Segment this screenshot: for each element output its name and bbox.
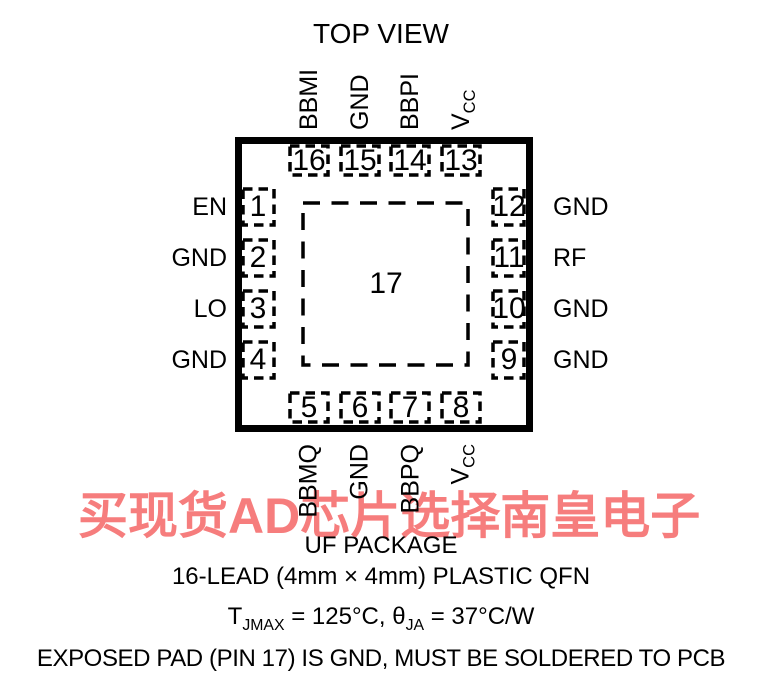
vcc-subscript: CC — [461, 444, 479, 468]
pin-4-label: GND — [171, 347, 227, 373]
diagram-title: TOP VIEW — [0, 20, 762, 48]
pin-10-label: GND — [553, 296, 609, 322]
pin-1-number: 1 — [250, 192, 267, 222]
package-name-caption: UF PACKAGE — [0, 533, 762, 559]
lead-count-caption: 16-LEAD (4mm × 4mm) PLASTIC QFN — [0, 564, 762, 590]
exposed-pad-note: EXPOSED PAD (PIN 17) IS GND, MUST BE SOL… — [0, 646, 762, 672]
pin-12-label: GND — [553, 194, 609, 220]
thermal-mid-text: = 125°C, θ — [285, 603, 406, 630]
pin-5-label: BBMQ — [296, 444, 322, 518]
pin-11-label: RF — [553, 245, 586, 271]
pin-6-label: GND — [347, 444, 373, 500]
pin-12-number: 12 — [492, 192, 525, 222]
pin-2-number: 2 — [250, 243, 267, 273]
pin-2-label: GND — [171, 245, 227, 271]
tjmax-subscript: JMAX — [242, 617, 284, 634]
pin-16-label: BBMI — [296, 69, 322, 130]
pin-9-label: GND — [553, 347, 609, 373]
pin-11-number: 11 — [493, 243, 524, 273]
pin-17-number: 17 — [369, 269, 402, 299]
pin-15-label: GND — [347, 74, 373, 130]
thermal-tail-text: = 37°C/W — [424, 603, 534, 630]
theta-ja-subscript: JA — [406, 617, 424, 634]
vcc-subscript: CC — [461, 89, 479, 113]
pin-6-number: 6 — [352, 393, 369, 423]
datasheet-pinout-figure: 买现货AD芯片选择南皇电子 TOP VIEW 16 15 14 13 1 2 3… — [0, 0, 762, 685]
pin-7-number: 7 — [402, 393, 419, 423]
pin-7-label: BBPQ — [397, 444, 423, 513]
pin-15-number: 15 — [343, 146, 376, 176]
pin-10-number: 10 — [492, 294, 525, 324]
thermal-caption: TJMAX = 125°C, θJA = 37°C/W — [0, 604, 762, 630]
pin-14-label: BBPI — [397, 73, 423, 130]
vcc-main: V — [447, 113, 475, 130]
pin-16-number: 16 — [292, 146, 325, 176]
pin-4-number: 4 — [250, 345, 267, 375]
pin-5-number: 5 — [301, 393, 318, 423]
pin-8-number: 8 — [453, 393, 470, 423]
vcc-main: V — [447, 468, 475, 485]
pin-3-number: 3 — [250, 294, 267, 324]
pin-13-number: 13 — [444, 146, 477, 176]
pin-1-label: EN — [192, 194, 227, 220]
tjmax-symbol: T — [228, 603, 243, 630]
pin-14-number: 14 — [393, 146, 426, 176]
pin-3-label: LO — [194, 296, 227, 322]
pin-8-label: VCC — [448, 444, 474, 485]
pin-9-number: 9 — [501, 345, 518, 375]
pin-13-label: VCC — [448, 89, 474, 130]
